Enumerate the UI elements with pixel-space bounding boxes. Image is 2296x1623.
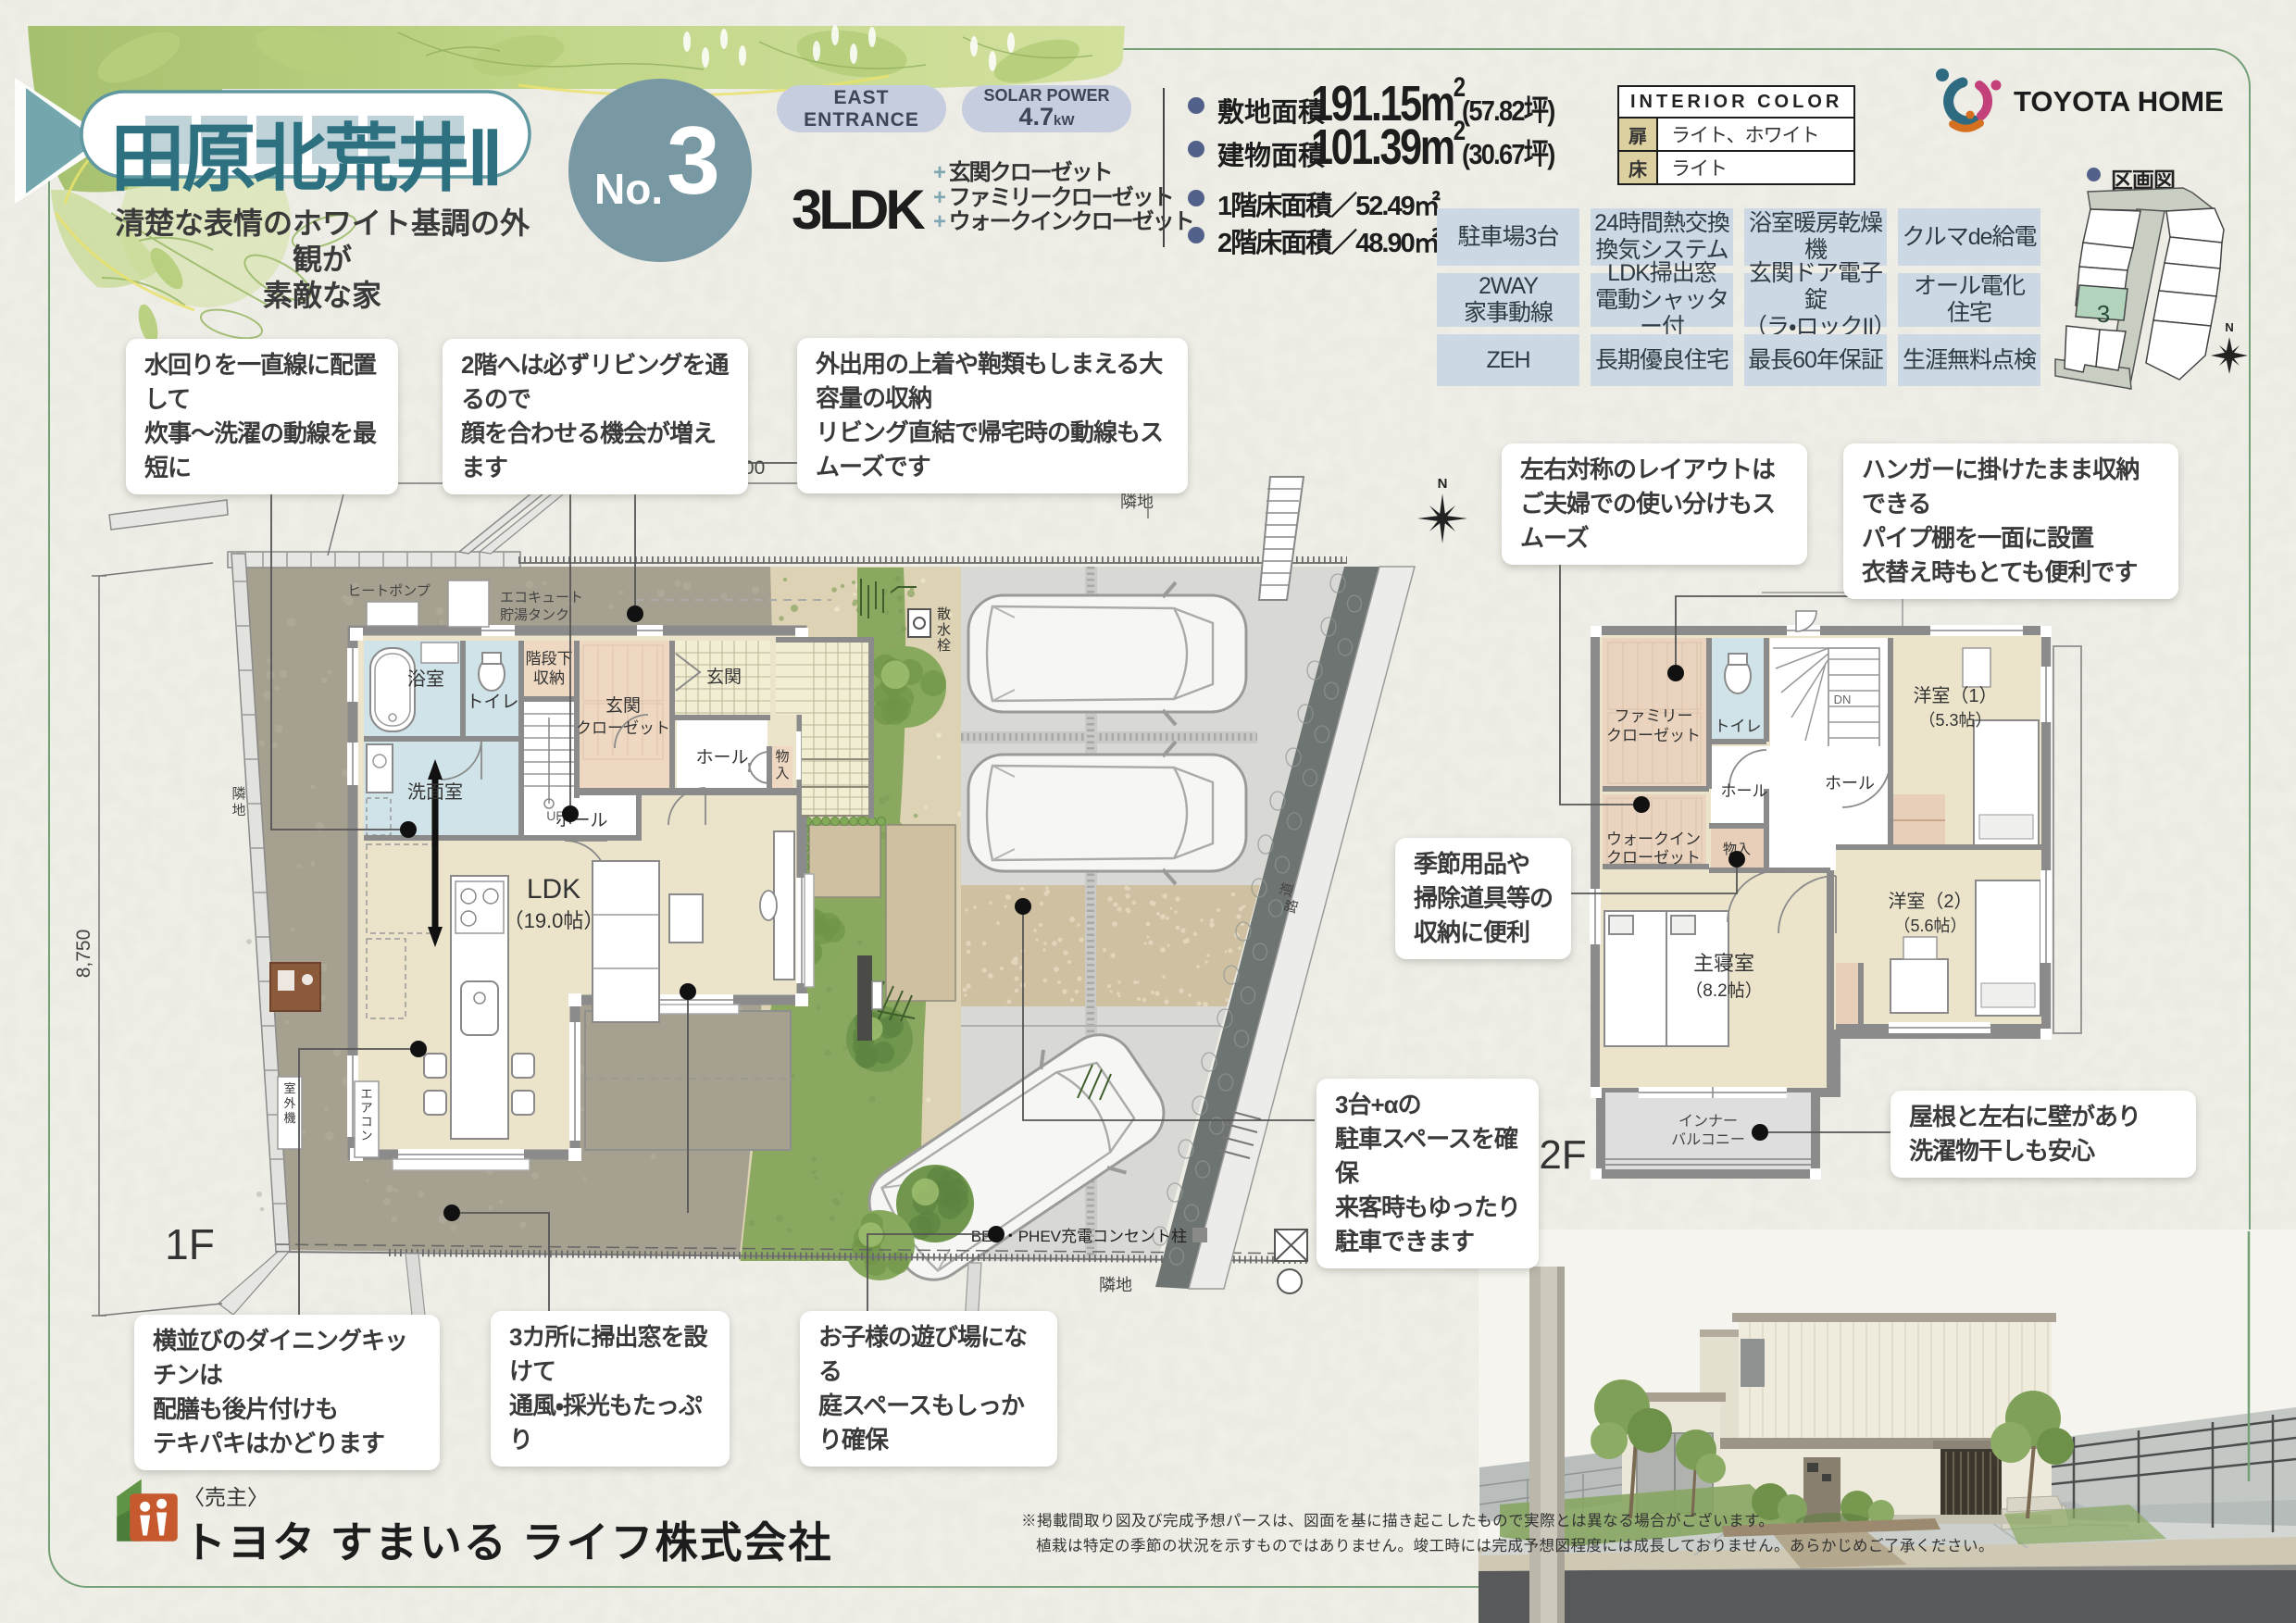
svg-text:機: 機 (283, 1111, 295, 1125)
svg-text:トイレ: トイレ (1715, 718, 1762, 735)
svg-text:主寝室: 主寝室 (1693, 952, 1754, 975)
svg-text:ホール: ホール (1825, 774, 1875, 793)
svg-text:散: 散 (937, 606, 951, 622)
svg-text:コ: コ (360, 1115, 372, 1129)
svg-text:2F: 2F (1539, 1132, 1586, 1178)
svg-text:DN: DN (1834, 693, 1852, 706)
svg-text:（5.6帖）: （5.6帖） (1893, 917, 1966, 935)
svg-text:エ: エ (360, 1087, 372, 1101)
svg-text:ホール: ホール (695, 748, 748, 768)
svg-text:ファミリー: ファミリー (1615, 707, 1693, 725)
svg-text:クローゼット: クローゼット (1606, 727, 1701, 744)
svg-text:クローゼット: クローゼット (576, 719, 670, 737)
svg-text:（5.3帖）: （5.3帖） (1918, 711, 1991, 730)
svg-text:隣地: 隣地 (1099, 1276, 1132, 1294)
svg-text:玄関: 玄関 (605, 695, 641, 716)
svg-text:地: 地 (231, 803, 245, 818)
svg-text:UP: UP (546, 808, 564, 823)
svg-text:ヒートポンプ: ヒートポンプ (347, 583, 430, 599)
svg-text:入: 入 (775, 766, 789, 781)
svg-text:3: 3 (2097, 300, 2110, 328)
svg-text:ン: ン (360, 1129, 372, 1142)
svg-text:洋室（2）: 洋室（2） (1888, 891, 1972, 912)
svg-text:玄関: 玄関 (706, 667, 742, 687)
svg-text:ウォークイン: ウォークイン (1606, 830, 1701, 848)
svg-text:（19.0帖）: （19.0帖） (504, 909, 605, 932)
svg-text:クローゼット: クローゼット (1606, 849, 1701, 867)
svg-text:貯湯タンク: 貯湯タンク (500, 607, 569, 623)
svg-text:物: 物 (775, 749, 789, 765)
svg-text:8,750: 8,750 (73, 930, 94, 979)
svg-text:洋室（1）: 洋室（1） (1913, 685, 1997, 706)
svg-text:室: 室 (283, 1081, 295, 1095)
svg-text:外: 外 (283, 1096, 295, 1110)
svg-text:N: N (2225, 320, 2233, 334)
svg-text:栓: 栓 (937, 638, 951, 654)
svg-text:ホール: ホール (1721, 782, 1768, 800)
svg-text:ア: ア (360, 1101, 372, 1115)
svg-text:隣: 隣 (231, 786, 245, 802)
svg-text:トイレ: トイレ (466, 693, 518, 712)
svg-text:水: 水 (937, 622, 951, 638)
svg-text:インナー: インナー (1678, 1114, 1738, 1130)
svg-text:階段下: 階段下 (526, 650, 573, 668)
svg-text:LDK: LDK (527, 874, 580, 905)
svg-text:（8.2帖）: （8.2帖） (1685, 980, 1762, 1001)
svg-text:洗面室: 洗面室 (407, 781, 463, 803)
svg-text:バルコニー: バルコニー (1671, 1132, 1745, 1148)
svg-text:浴室: 浴室 (407, 668, 444, 690)
svg-text:1F: 1F (165, 1220, 215, 1268)
svg-text:N: N (1438, 476, 1448, 492)
svg-text:収納: 収納 (533, 669, 565, 687)
